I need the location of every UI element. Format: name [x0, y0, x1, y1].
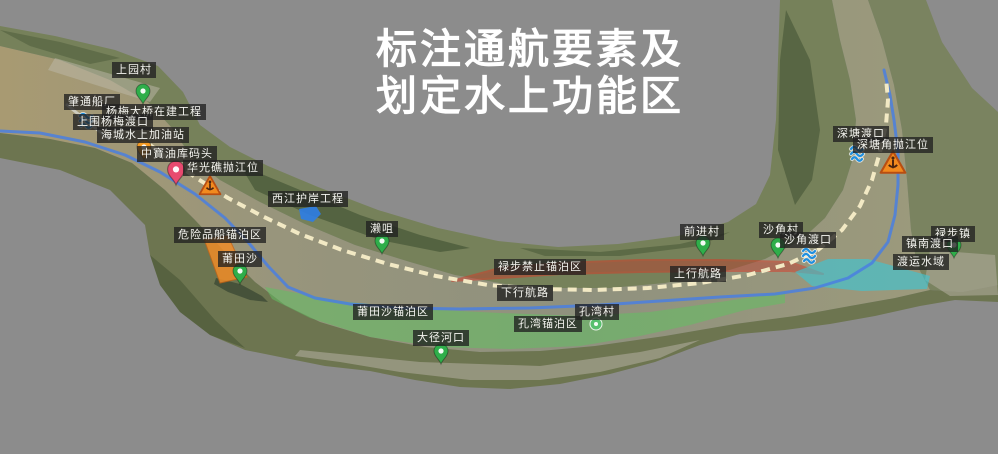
label-xijiang-revetment: 西江护岸工程: [268, 191, 348, 207]
label-haicheng-fuel: 海城水上加油站: [97, 127, 189, 143]
annotated-river-map: 上园村 肇通船厂 杨梅大桥在建工程 上围杨梅渡口 海城水上加油站 中寶油库码头 …: [0, 0, 998, 454]
label-ferry-water-area: 渡运水域: [893, 254, 949, 270]
label-dangerous-anchorage: 危险品船锚泊区: [174, 227, 266, 243]
label-qianjin-village: 前进村: [680, 224, 724, 240]
label-putiansha: 莆田沙: [218, 251, 262, 267]
page-title: 标注通航要素及 划定水上功能区: [376, 26, 684, 120]
label-shangyuan-village: 上园村: [112, 62, 156, 78]
label-dajing-estuary: 大径河口: [413, 330, 469, 346]
label-shajiao-ferry: 沙角渡口: [780, 232, 836, 248]
label-kongwan-anchorage: 孔湾锚泊区: [514, 316, 582, 332]
label-lubu-no-anchor-zone: 禄步禁止锚泊区: [494, 259, 586, 275]
label-kongwan-village: 孔湾村: [575, 304, 619, 320]
label-laizui: 濑咀: [366, 221, 398, 237]
label-putiansha-anchorage: 莆田沙锚泊区: [353, 304, 433, 320]
title-line1: 标注通航要素及: [376, 26, 684, 73]
label-huaguangjiao: 华光礁抛江位: [183, 160, 263, 176]
label-shentangjiao: 深塘角抛江位: [853, 137, 933, 153]
label-zhennan-ferry: 镇南渡口: [902, 236, 958, 252]
label-downstream-route: 下行航路: [497, 285, 553, 301]
label-upstream-route: 上行航路: [670, 266, 726, 282]
title-line2: 划定水上功能区: [376, 73, 684, 120]
